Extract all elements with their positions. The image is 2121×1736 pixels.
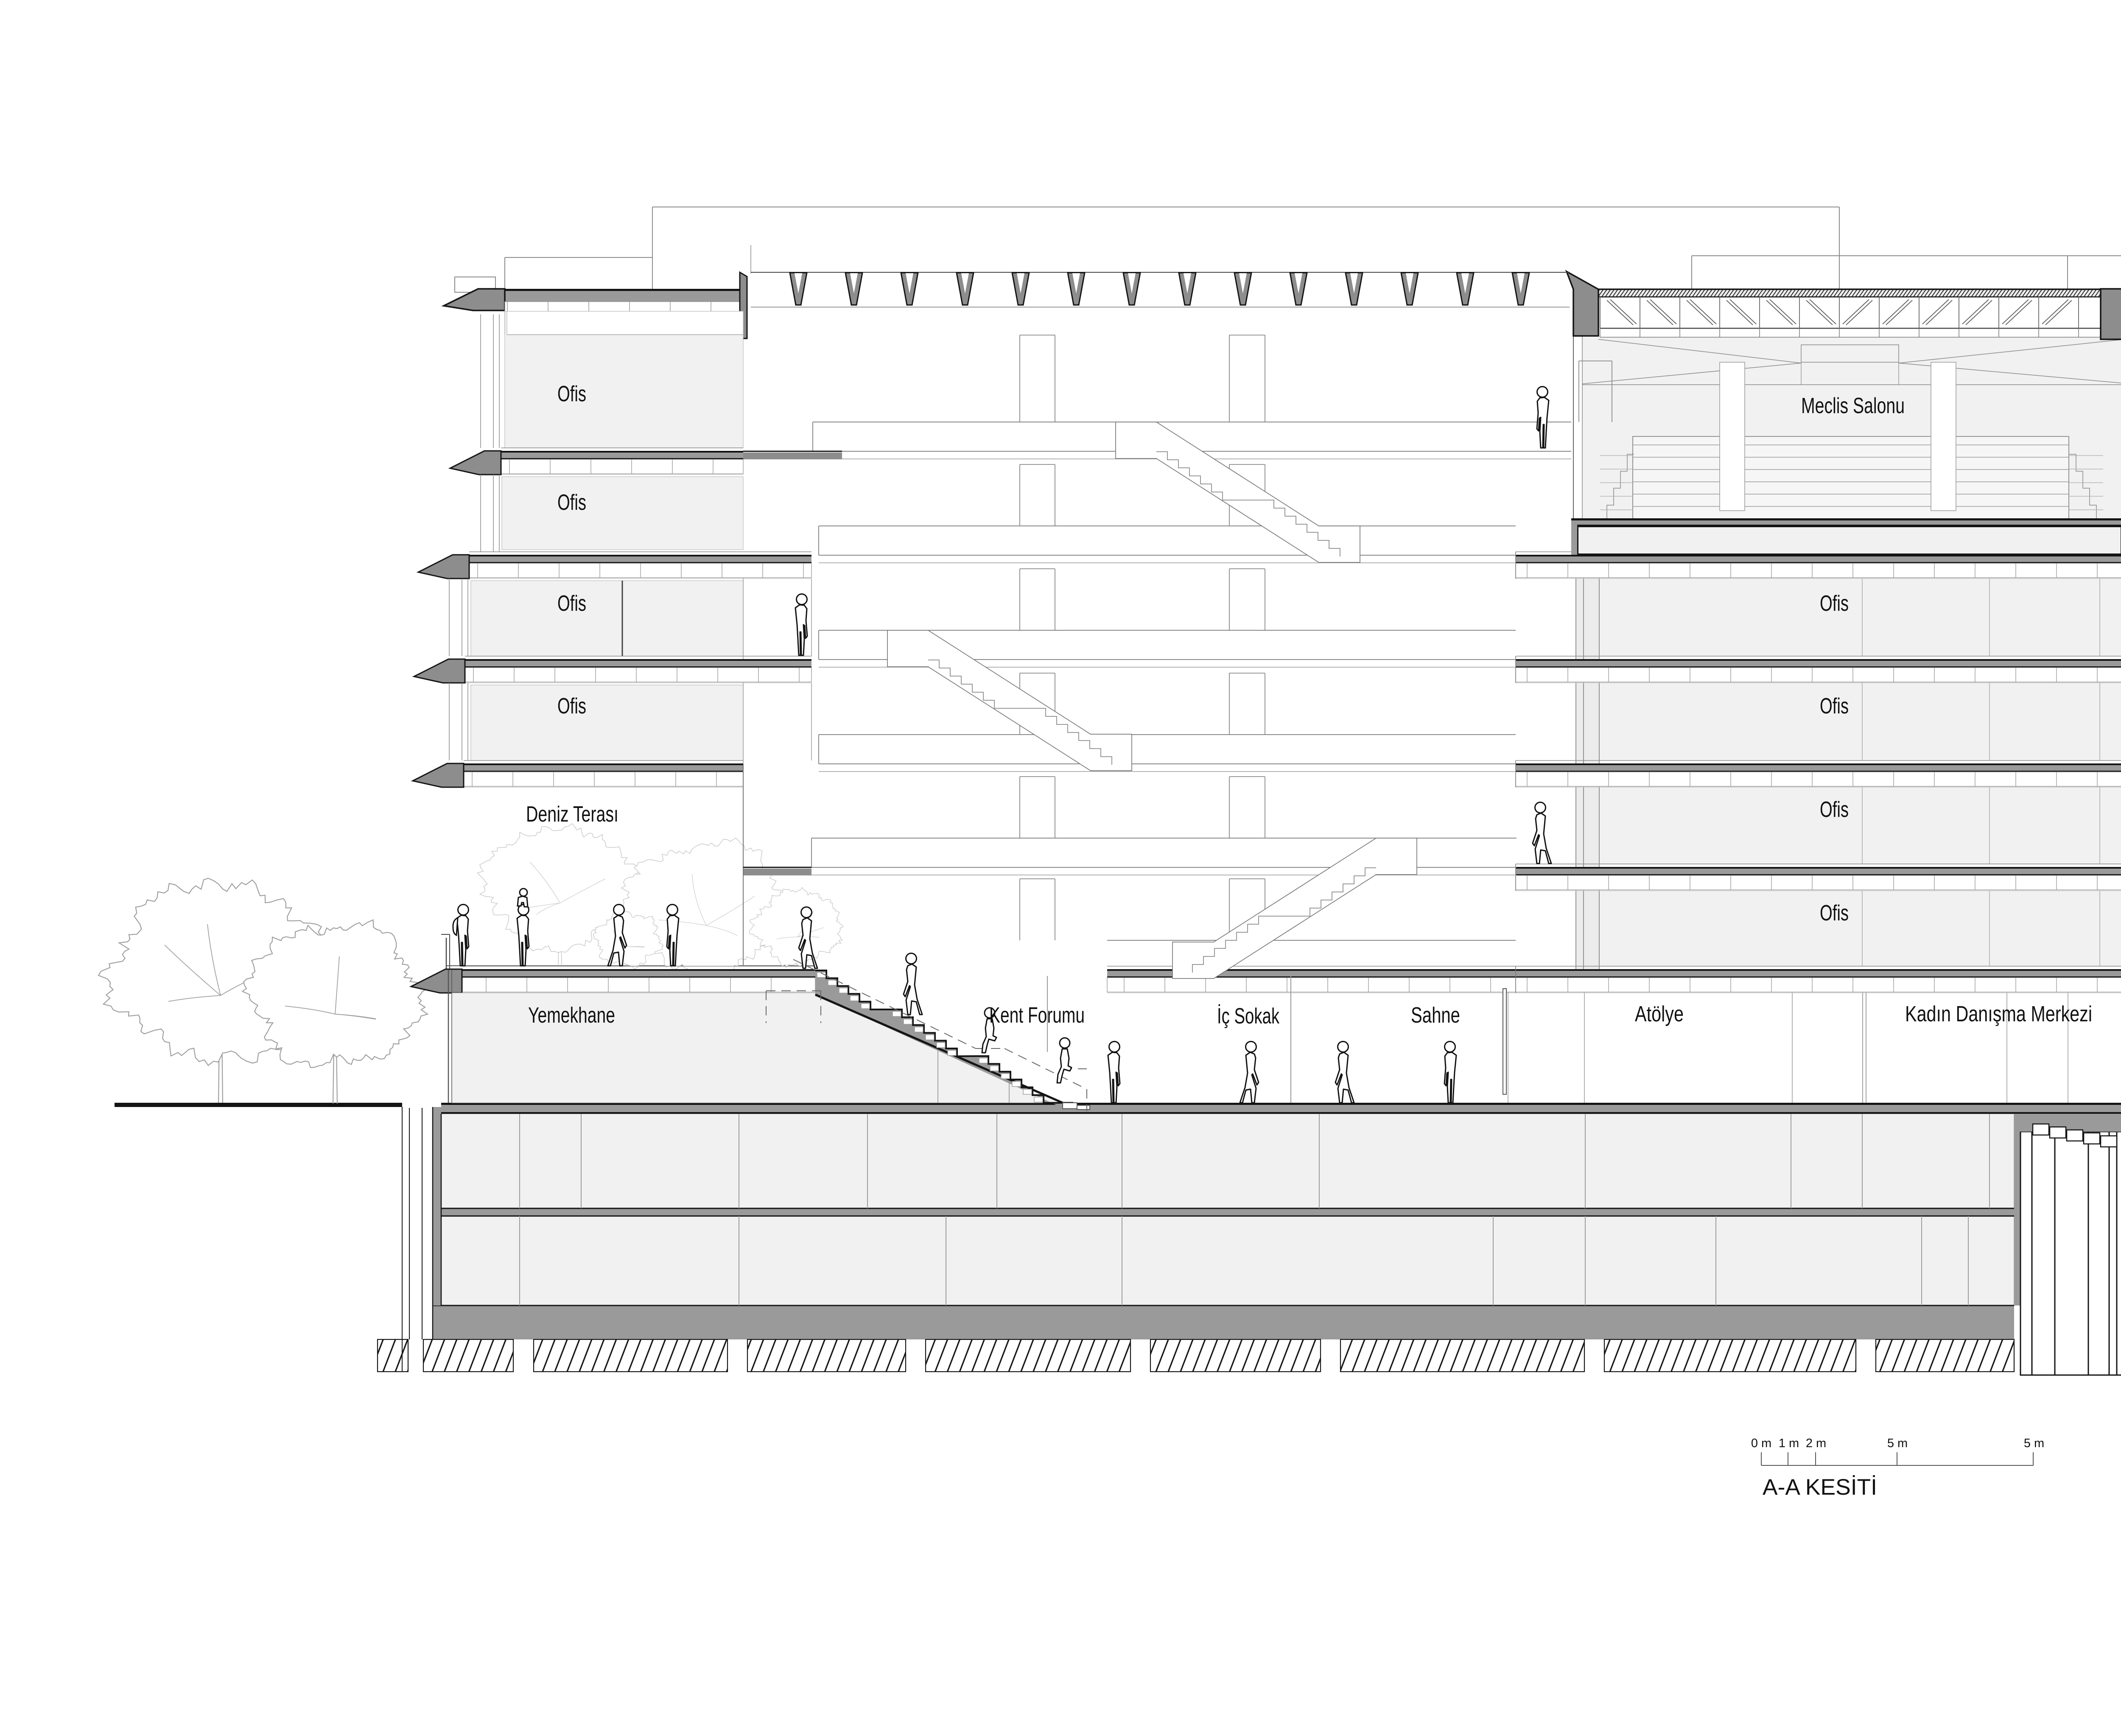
svg-text:Ofis: Ofis bbox=[1820, 694, 1849, 718]
svg-text:1 m: 1 m bbox=[1779, 1437, 1799, 1450]
svg-text:Yemekhane: Yemekhane bbox=[528, 1003, 615, 1028]
svg-text:Ofis: Ofis bbox=[1820, 591, 1849, 616]
svg-text:Kent Forumu: Kent Forumu bbox=[989, 1003, 1085, 1028]
svg-text:5 m: 5 m bbox=[1887, 1437, 1908, 1450]
svg-text:Ofis: Ofis bbox=[1820, 797, 1849, 822]
svg-text:Atölye: Atölye bbox=[1635, 1002, 1684, 1026]
svg-text:Deniz Terası: Deniz Terası bbox=[526, 802, 618, 827]
svg-text:5 m: 5 m bbox=[2024, 1437, 2044, 1450]
svg-text:Sahne: Sahne bbox=[1411, 1003, 1460, 1028]
svg-text:Ofis: Ofis bbox=[557, 694, 586, 718]
svg-text:A-A KESİTİ: A-A KESİTİ bbox=[1763, 1475, 1877, 1500]
svg-text:Ofis: Ofis bbox=[1820, 901, 1849, 925]
svg-text:0 m: 0 m bbox=[1751, 1437, 1771, 1450]
svg-text:Ofis: Ofis bbox=[557, 490, 586, 515]
svg-text:Ofis: Ofis bbox=[557, 591, 586, 616]
svg-text:Ofis: Ofis bbox=[557, 382, 586, 406]
svg-text:2 m: 2 m bbox=[1806, 1437, 1826, 1450]
svg-text:Meclis Salonu: Meclis Salonu bbox=[1801, 394, 1905, 418]
svg-text:İç Sokak: İç Sokak bbox=[1217, 1004, 1280, 1029]
svg-text:Kadın Danışma Merkezi: Kadın Danışma Merkezi bbox=[1905, 1002, 2092, 1026]
